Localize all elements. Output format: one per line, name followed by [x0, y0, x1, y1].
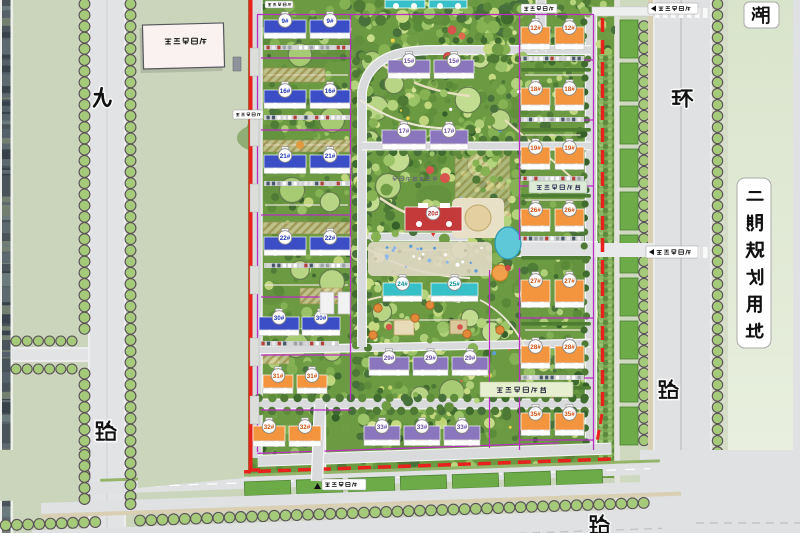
svg-text:19#: 19# [530, 145, 541, 152]
svg-text:17#: 17# [399, 128, 410, 135]
svg-text:35#: 35# [564, 411, 575, 418]
svg-text:22#: 22# [280, 235, 291, 242]
svg-text:25#: 25# [449, 281, 460, 288]
svg-text:29#: 29# [384, 355, 395, 362]
svg-text:31#: 31# [273, 373, 284, 380]
svg-text:16#: 16# [325, 88, 336, 95]
svg-text:33#: 33# [377, 424, 388, 431]
svg-text:12#: 12# [530, 25, 541, 32]
svg-text:32#: 32# [264, 424, 275, 431]
svg-text:21#: 21# [280, 153, 291, 160]
svg-text:28#: 28# [530, 344, 541, 351]
svg-text:28#: 28# [564, 344, 575, 351]
svg-text:30#: 30# [274, 315, 285, 322]
svg-text:27#: 27# [564, 278, 575, 285]
svg-text:22#: 22# [325, 235, 336, 242]
svg-text:19#: 19# [564, 145, 575, 152]
svg-text:9#: 9# [326, 18, 334, 25]
svg-text:15#: 15# [449, 58, 460, 65]
svg-text:27#: 27# [530, 278, 541, 285]
svg-text:29#: 29# [465, 355, 476, 362]
svg-text:26#: 26# [564, 207, 575, 214]
svg-text:20#: 20# [428, 211, 439, 218]
svg-text:31#: 31# [307, 373, 318, 380]
svg-text:15#: 15# [404, 58, 415, 65]
svg-text:29#: 29# [425, 355, 436, 362]
svg-text:32#: 32# [300, 424, 311, 431]
svg-text:24#: 24# [397, 281, 408, 288]
svg-text:30#: 30# [316, 315, 327, 322]
svg-text:35#: 35# [530, 411, 541, 418]
svg-text:16#: 16# [280, 88, 291, 95]
svg-text:12#: 12# [564, 25, 575, 32]
svg-text:21#: 21# [325, 153, 336, 160]
svg-text:26#: 26# [530, 207, 541, 214]
svg-text:18#: 18# [530, 86, 541, 93]
svg-text:33#: 33# [457, 424, 468, 431]
svg-text:33#: 33# [417, 424, 428, 431]
svg-text:18#: 18# [564, 86, 575, 93]
svg-text:17#: 17# [444, 128, 455, 135]
svg-text:9#: 9# [281, 18, 289, 25]
